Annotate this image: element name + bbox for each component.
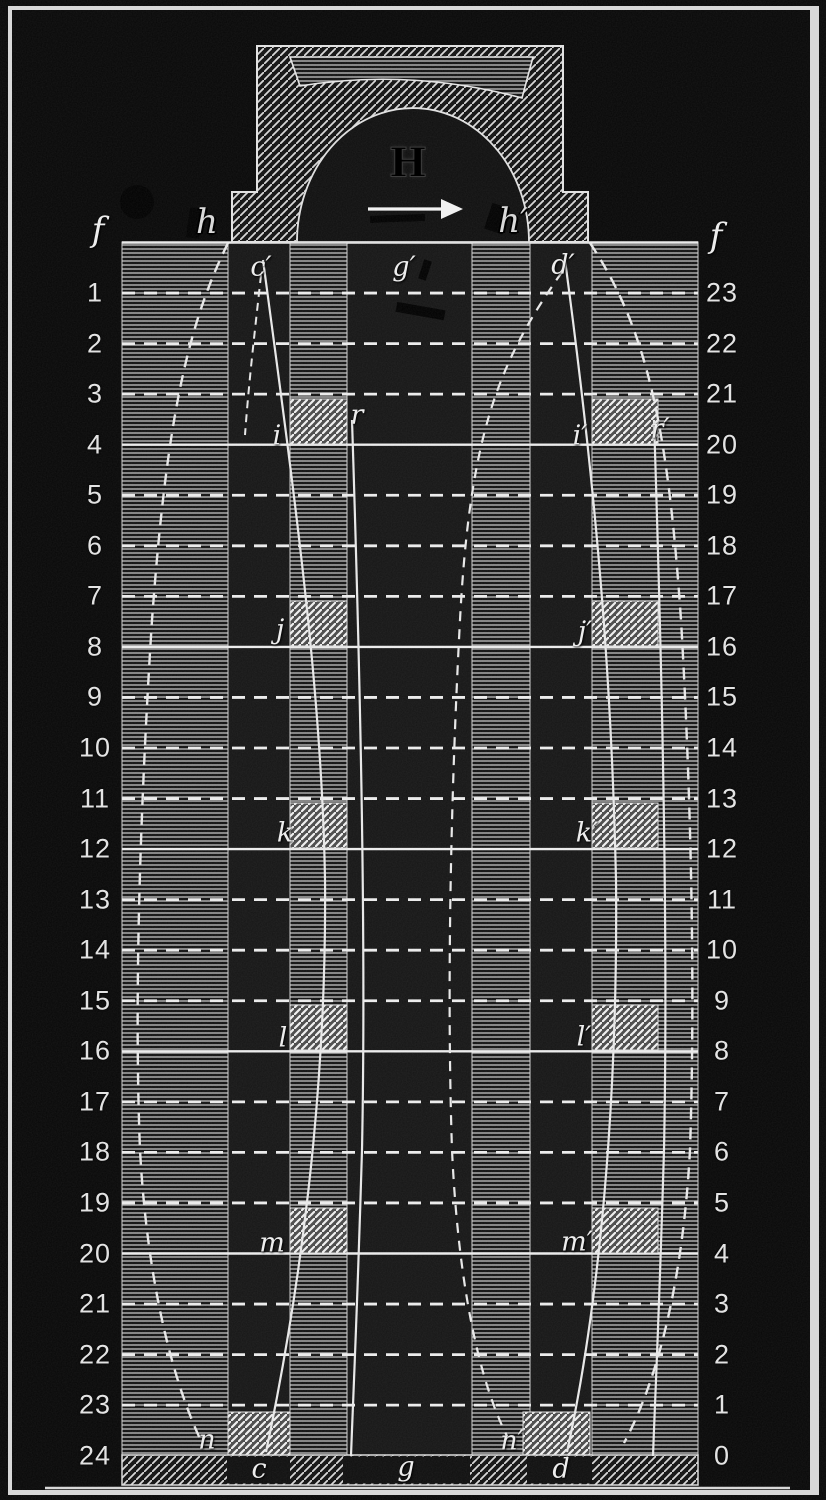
- diagram-artwork: [0, 0, 826, 1500]
- engraving-plate: f f H h h′ c′ g′ d′ r r′ i j k l m n i′ …: [0, 0, 826, 1500]
- grain-texture: [0, 0, 826, 1500]
